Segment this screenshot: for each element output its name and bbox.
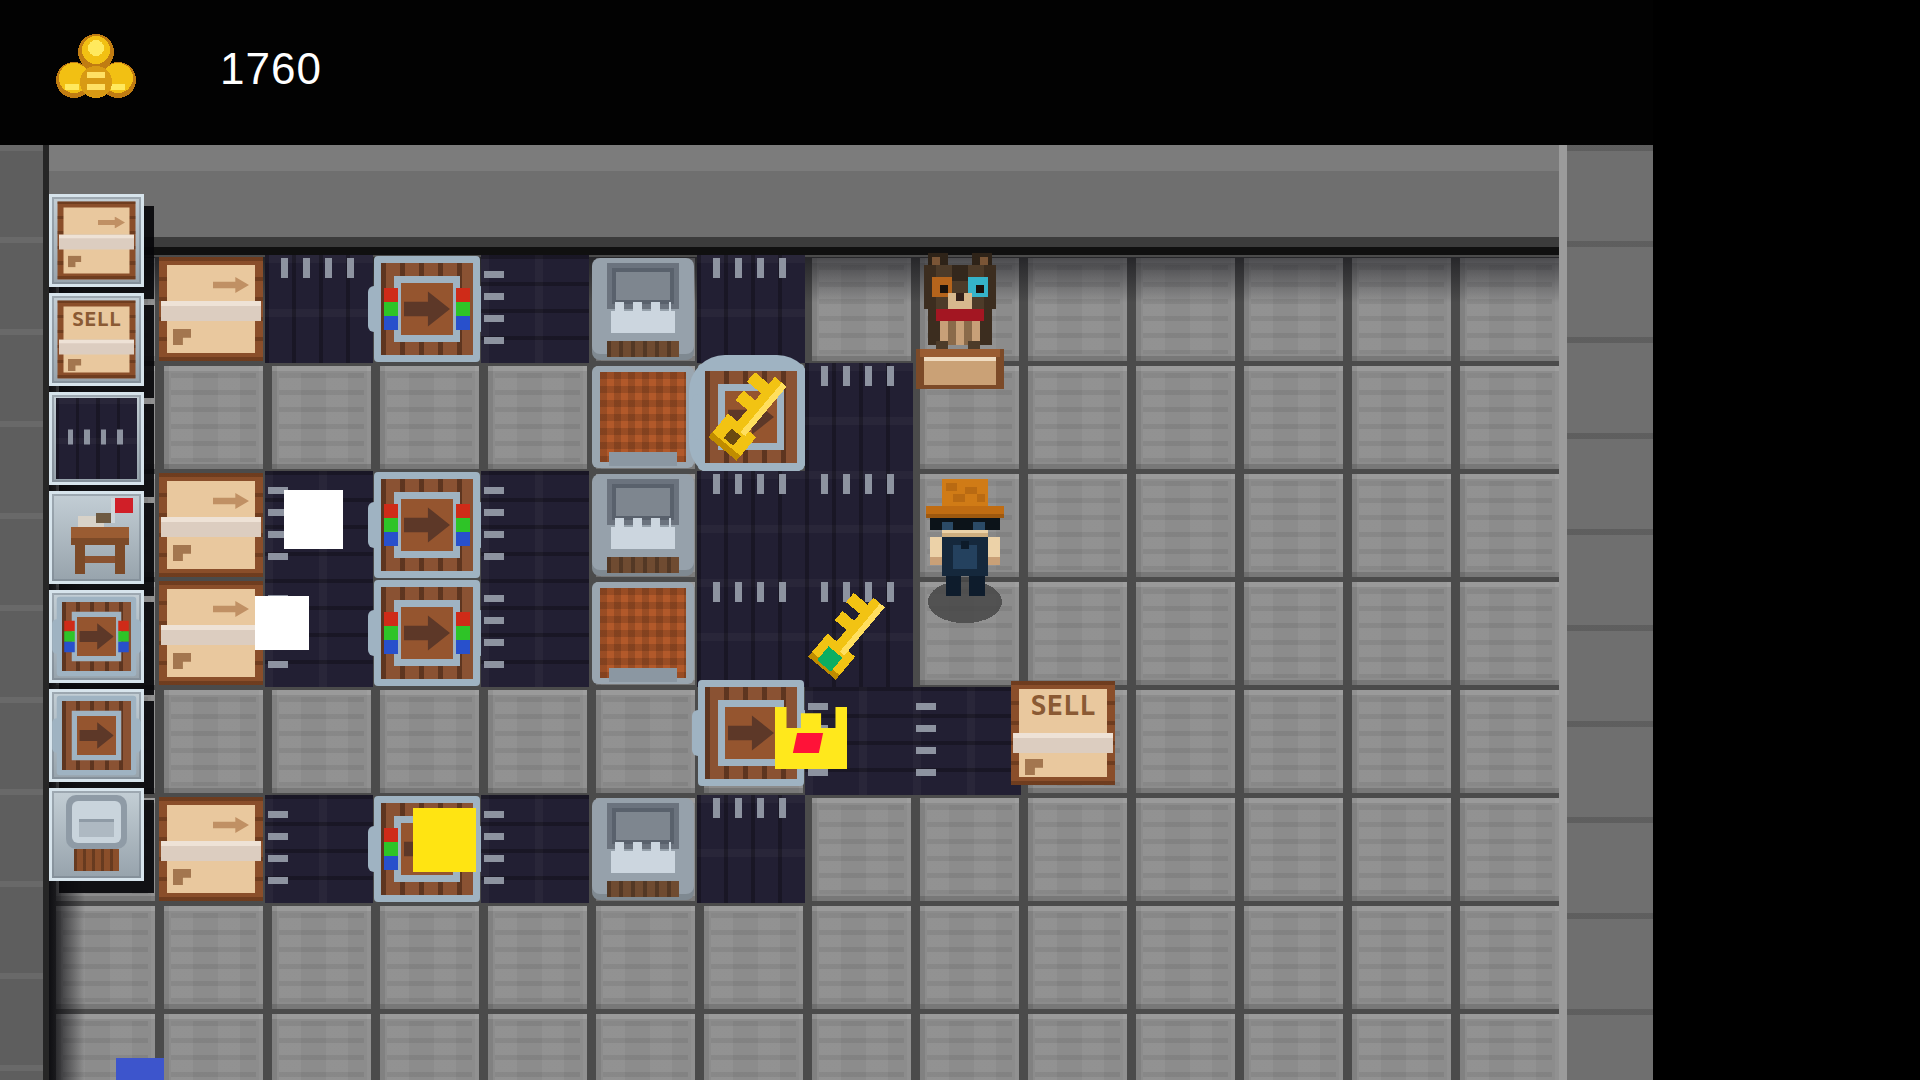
tile-conveyor[interactable] — [805, 471, 913, 579]
floor-tile — [589, 903, 697, 1011]
world-view: SELL — [0, 145, 1653, 1080]
floor-tile — [373, 1011, 481, 1080]
floor-tile — [1237, 363, 1345, 471]
sidebar-slot-sell-crate[interactable]: SELL — [49, 293, 144, 386]
tile-sell-crate[interactable]: SELL — [1009, 679, 1117, 787]
floor-tile — [913, 903, 1021, 1011]
floor-tile — [1345, 363, 1453, 471]
floor-tile — [157, 363, 265, 471]
item-gold-crown[interactable] — [775, 707, 847, 769]
floor-tile — [1453, 579, 1561, 687]
floor-tile — [373, 903, 481, 1011]
hud-bar: 1760 — [0, 0, 1920, 145]
floor-tile — [1453, 795, 1561, 903]
floor-tile — [1237, 1011, 1345, 1080]
floor-tile — [1129, 795, 1237, 903]
tile-press-machine[interactable] — [589, 255, 697, 363]
tile-conveyor[interactable] — [697, 795, 805, 903]
floor-tile — [1021, 471, 1129, 579]
floor-tile — [1237, 579, 1345, 687]
game-stage: SELL SELL 1760 — [0, 0, 1920, 1080]
sidebar-slot-crate-dispenser[interactable] — [49, 194, 144, 287]
arrow-icon — [79, 622, 114, 652]
floor-tile — [805, 903, 913, 1011]
tile-conveyor[interactable] — [481, 471, 589, 579]
floor-tile — [1021, 903, 1129, 1011]
wall-right — [1559, 145, 1653, 1080]
floor-tile — [1129, 579, 1237, 687]
tile-key-machine[interactable] — [697, 363, 805, 471]
floor-tile — [697, 903, 805, 1011]
tile-conveyor[interactable] — [913, 687, 1021, 795]
floor-tile — [481, 1011, 589, 1080]
floor-tile — [1237, 795, 1345, 903]
floor-tile — [265, 687, 373, 795]
floor-tile — [913, 795, 1021, 903]
floor-tile — [265, 363, 373, 471]
floor-tile — [589, 1011, 697, 1080]
arrow-icon — [404, 505, 450, 545]
cat-character[interactable] — [916, 252, 1004, 390]
tile-conveyor[interactable] — [805, 363, 913, 471]
sidebar-slot-pusher-machine[interactable] — [49, 689, 144, 782]
tile-press-machine[interactable] — [589, 795, 697, 903]
tile-crate[interactable] — [157, 795, 265, 903]
player-character[interactable] — [926, 478, 1004, 624]
sidebar-slot-sorter-machine[interactable] — [49, 590, 144, 683]
sell-label: SELL — [1009, 692, 1117, 719]
floor-tile — [913, 1011, 1021, 1080]
tile-sorter-machine[interactable] — [373, 471, 481, 579]
tile-conveyor[interactable] — [697, 471, 805, 579]
floor-tile — [1021, 363, 1129, 471]
floor-tile — [1237, 687, 1345, 795]
tile-conveyor[interactable] — [481, 255, 589, 363]
arrow-icon — [404, 289, 450, 329]
wall-top — [0, 145, 1653, 247]
floor-tile — [481, 903, 589, 1011]
floor-tile — [1345, 579, 1453, 687]
tile-conveyor[interactable] — [481, 579, 589, 687]
floor-tile — [1453, 363, 1561, 471]
floor-tile — [1345, 687, 1453, 795]
floor-tile — [157, 687, 265, 795]
tile-conveyor[interactable] — [265, 795, 373, 903]
floor-tile — [1129, 363, 1237, 471]
wall-left — [0, 145, 49, 1080]
item-white-square[interactable] — [284, 490, 343, 549]
red-gem-icon — [793, 733, 823, 753]
tile-press-machine[interactable] — [589, 471, 697, 579]
gold-pile-icon — [55, 32, 137, 98]
item-blue-square[interactable] — [116, 1058, 164, 1080]
floor-tile — [157, 1011, 265, 1080]
floor-tile — [481, 363, 589, 471]
floor-tile — [1237, 903, 1345, 1011]
tile-conveyor[interactable] — [265, 255, 373, 363]
tile-sorter-machine[interactable] — [373, 255, 481, 363]
floor-tile — [1021, 1011, 1129, 1080]
floor-tile — [157, 903, 265, 1011]
floor-tile — [1021, 579, 1129, 687]
tile-crate[interactable] — [157, 471, 265, 579]
floor-tile — [1129, 687, 1237, 795]
tile-crate[interactable] — [157, 255, 265, 363]
tile-conveyor[interactable] — [481, 795, 589, 903]
arrow-icon — [728, 713, 774, 753]
tile-conveyor[interactable] — [697, 255, 805, 363]
floor-tile — [1345, 795, 1453, 903]
floor-tile — [265, 903, 373, 1011]
tile-hopper[interactable] — [589, 363, 697, 471]
floor-tile — [697, 1011, 805, 1080]
floor-tile — [1453, 903, 1561, 1011]
floor-tile — [265, 1011, 373, 1080]
floor-tile — [1021, 795, 1129, 903]
floor-tile — [589, 687, 697, 795]
floor-tile — [1453, 471, 1561, 579]
item-gold-key[interactable] — [812, 588, 886, 684]
floor-tile — [373, 687, 481, 795]
floor-tile — [481, 687, 589, 795]
floor-tile — [1453, 1011, 1561, 1080]
floor-tile — [373, 363, 481, 471]
tile-crate[interactable] — [157, 579, 265, 687]
tile-conveyor[interactable] — [697, 579, 805, 687]
coin-counter: 1760 — [220, 44, 322, 94]
floor-tile — [1345, 903, 1453, 1011]
sidebar-slot-press-machine[interactable] — [49, 788, 144, 881]
item-yellow-square[interactable] — [413, 808, 476, 872]
floor-tile — [805, 1011, 913, 1080]
floor-tile — [1345, 1011, 1453, 1080]
floor-tile — [1453, 687, 1561, 795]
tile-sorter-machine[interactable] — [373, 579, 481, 687]
floor-tile — [1129, 1011, 1237, 1080]
floor-tile — [805, 795, 913, 903]
tile-hopper[interactable] — [589, 579, 697, 687]
item-white-square[interactable] — [255, 596, 309, 650]
floor-tile — [1129, 471, 1237, 579]
screen-void — [1653, 0, 1920, 1080]
sidebar-slot-conveyor-belt[interactable] — [49, 392, 144, 485]
arrow-icon — [404, 613, 450, 653]
sell-label: SELL — [56, 309, 137, 329]
floor-tile — [1237, 471, 1345, 579]
floor-tile — [1345, 471, 1453, 579]
sidebar-slot-market-stall[interactable] — [49, 491, 144, 584]
arrow-icon — [79, 721, 114, 751]
floor-tile — [1129, 903, 1237, 1011]
